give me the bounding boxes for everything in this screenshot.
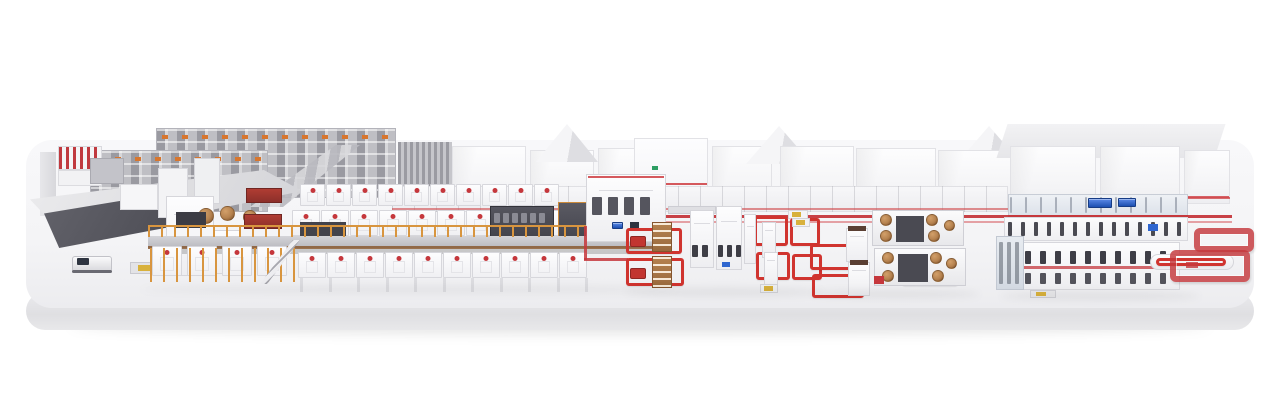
pallet-ladder-tower: [652, 256, 672, 288]
window-slit: [1025, 273, 1031, 284]
window-slit: [1040, 273, 1046, 284]
cluster2-shadow: [810, 290, 980, 298]
print-cylinder: [926, 214, 938, 226]
machine-module: [456, 184, 481, 206]
window-slit: [1055, 251, 1061, 264]
machine-module: [472, 252, 500, 278]
window-slit: [1025, 197, 1027, 213]
converter-windows: [718, 244, 742, 258]
window-slit: [521, 213, 527, 223]
machine-module: [534, 184, 559, 206]
window-slit: [1060, 222, 1064, 236]
window-slit: [1160, 197, 1162, 213]
window-slit: [512, 213, 518, 223]
window-slit: [1021, 222, 1025, 236]
machine-module: [501, 252, 529, 278]
window-slit: [1040, 251, 1046, 264]
line-station-pallet: [792, 212, 801, 217]
window-slit: [736, 245, 741, 257]
window-slit: [592, 197, 602, 215]
loop-tower: [764, 252, 778, 286]
mill-roll-stand-row: [298, 252, 590, 278]
window-slit: [1086, 222, 1090, 236]
agv-chassis: [72, 270, 112, 273]
dryend-doors: [592, 196, 658, 216]
window-slit: [1085, 197, 1087, 213]
window-slit: [1115, 197, 1117, 213]
single-facer: [246, 188, 282, 203]
window-slit: [1100, 273, 1106, 284]
machine-module: [378, 184, 403, 206]
window-slit: [1125, 222, 1129, 236]
factory-wall: [1184, 150, 1230, 204]
right-shadow: [1000, 292, 1200, 300]
corrugated-board-plant-render: [0, 0, 1280, 405]
machine-module: [404, 184, 429, 206]
window-slit: [640, 197, 650, 215]
loop-connector: [1186, 262, 1198, 268]
window-slit: [1100, 251, 1106, 264]
window-slit: [503, 213, 509, 223]
machine-module: [530, 252, 558, 278]
floor-red-connector-v: [584, 226, 587, 260]
machine-module: [414, 252, 442, 278]
print-cylinder: [928, 230, 940, 242]
window-slit: [1138, 222, 1142, 236]
window-slit: [1055, 273, 1061, 284]
window-slit: [1175, 197, 1177, 213]
window-slit: [718, 245, 723, 257]
window-slit: [1055, 197, 1057, 213]
window-slit: [1010, 197, 1012, 213]
print-cylinder: [880, 214, 892, 226]
window-slit: [1034, 222, 1038, 236]
print-cylinder: [882, 252, 894, 264]
print-cylinder: [944, 220, 955, 231]
bridge-house-1-windows: [494, 212, 550, 224]
machine-module: [300, 184, 325, 206]
machine-module: [559, 252, 587, 278]
dryend-red-trim: [588, 176, 664, 178]
machine-module: [443, 252, 471, 278]
machine-module: [352, 184, 377, 206]
window-slit: [1164, 222, 1168, 236]
window-slit: [1008, 222, 1012, 236]
red-pallet-truck: [630, 236, 646, 247]
machine-module: [482, 184, 507, 206]
window-slit: [1073, 222, 1077, 236]
converter-tower: [716, 206, 742, 270]
window-slit: [1085, 273, 1091, 284]
floor-red-connector-h: [584, 258, 628, 261]
window-slit: [1112, 222, 1116, 236]
window-slit: [1130, 251, 1136, 264]
window-slit: [1177, 222, 1181, 236]
window-slit: [494, 213, 500, 223]
converter-tower: [690, 210, 714, 268]
shipping-roller-loop: [1170, 250, 1250, 282]
print-cylinder: [880, 230, 892, 242]
window-slit: [624, 197, 634, 215]
flexo-dark-core: [896, 216, 924, 242]
window-slit: [1070, 273, 1076, 284]
window-slit: [1070, 197, 1072, 213]
window-slit: [1115, 251, 1121, 264]
prefeeder-cap: [850, 260, 868, 265]
converter-windows: [692, 244, 712, 258]
window-slit: [1130, 273, 1136, 284]
sorter-front-windows: [1010, 272, 1174, 284]
print-cylinder: [930, 252, 942, 264]
dryend-display: [612, 222, 623, 229]
window-slit: [1070, 251, 1076, 264]
sorter-display: [1118, 198, 1136, 207]
flexo-dark-core: [898, 254, 928, 282]
window-slit: [1025, 251, 1031, 264]
window-slit: [539, 213, 545, 223]
converter-tower: [744, 214, 756, 264]
window-slit: [530, 213, 536, 223]
window-slit: [1007, 242, 1011, 284]
window-slit: [1085, 251, 1091, 264]
window-slit: [1115, 273, 1121, 284]
machine-module: [508, 184, 533, 206]
print-cylinder: [932, 270, 944, 282]
front-floor-shadow: [140, 286, 680, 293]
shipping-roller-loop: [1194, 228, 1254, 252]
flexo-red-unit: [874, 276, 884, 284]
machine-module: [430, 184, 455, 206]
kraft-roll: [220, 206, 235, 221]
machine-module: [298, 252, 326, 278]
pallet-ladder-tower: [652, 222, 672, 252]
converter-display: [722, 262, 730, 267]
red-pallet-truck: [630, 268, 646, 279]
splicer-row-back: [300, 184, 560, 206]
sorter-display-small: [1148, 224, 1158, 231]
window-slit: [1145, 197, 1147, 213]
window-slit: [1145, 273, 1151, 284]
infeed-machine: [90, 158, 124, 184]
agv-screen: [77, 258, 89, 265]
window-slit: [1040, 197, 1042, 213]
window-slit: [608, 197, 618, 215]
glass-tower-grid: [999, 241, 1021, 285]
window-slit: [1047, 222, 1051, 236]
prefeeder: [846, 228, 868, 262]
window-slit: [1160, 273, 1166, 284]
infeed-machine: [120, 184, 158, 210]
window-slit: [702, 245, 708, 257]
sorter-display: [1088, 198, 1112, 208]
machine-module: [385, 252, 413, 278]
window-slit: [692, 245, 698, 257]
print-cylinder: [946, 258, 957, 269]
window-slit: [999, 242, 1003, 284]
cart-pallet: [796, 220, 805, 225]
prefeeder-cap: [848, 226, 866, 231]
window-slit: [1015, 242, 1019, 284]
window-slit: [1099, 222, 1103, 236]
window-slit: [727, 245, 732, 257]
machine-module: [356, 252, 384, 278]
machine-module: [327, 252, 355, 278]
machine-module: [326, 184, 351, 206]
wall-logo-chip: [652, 166, 658, 170]
